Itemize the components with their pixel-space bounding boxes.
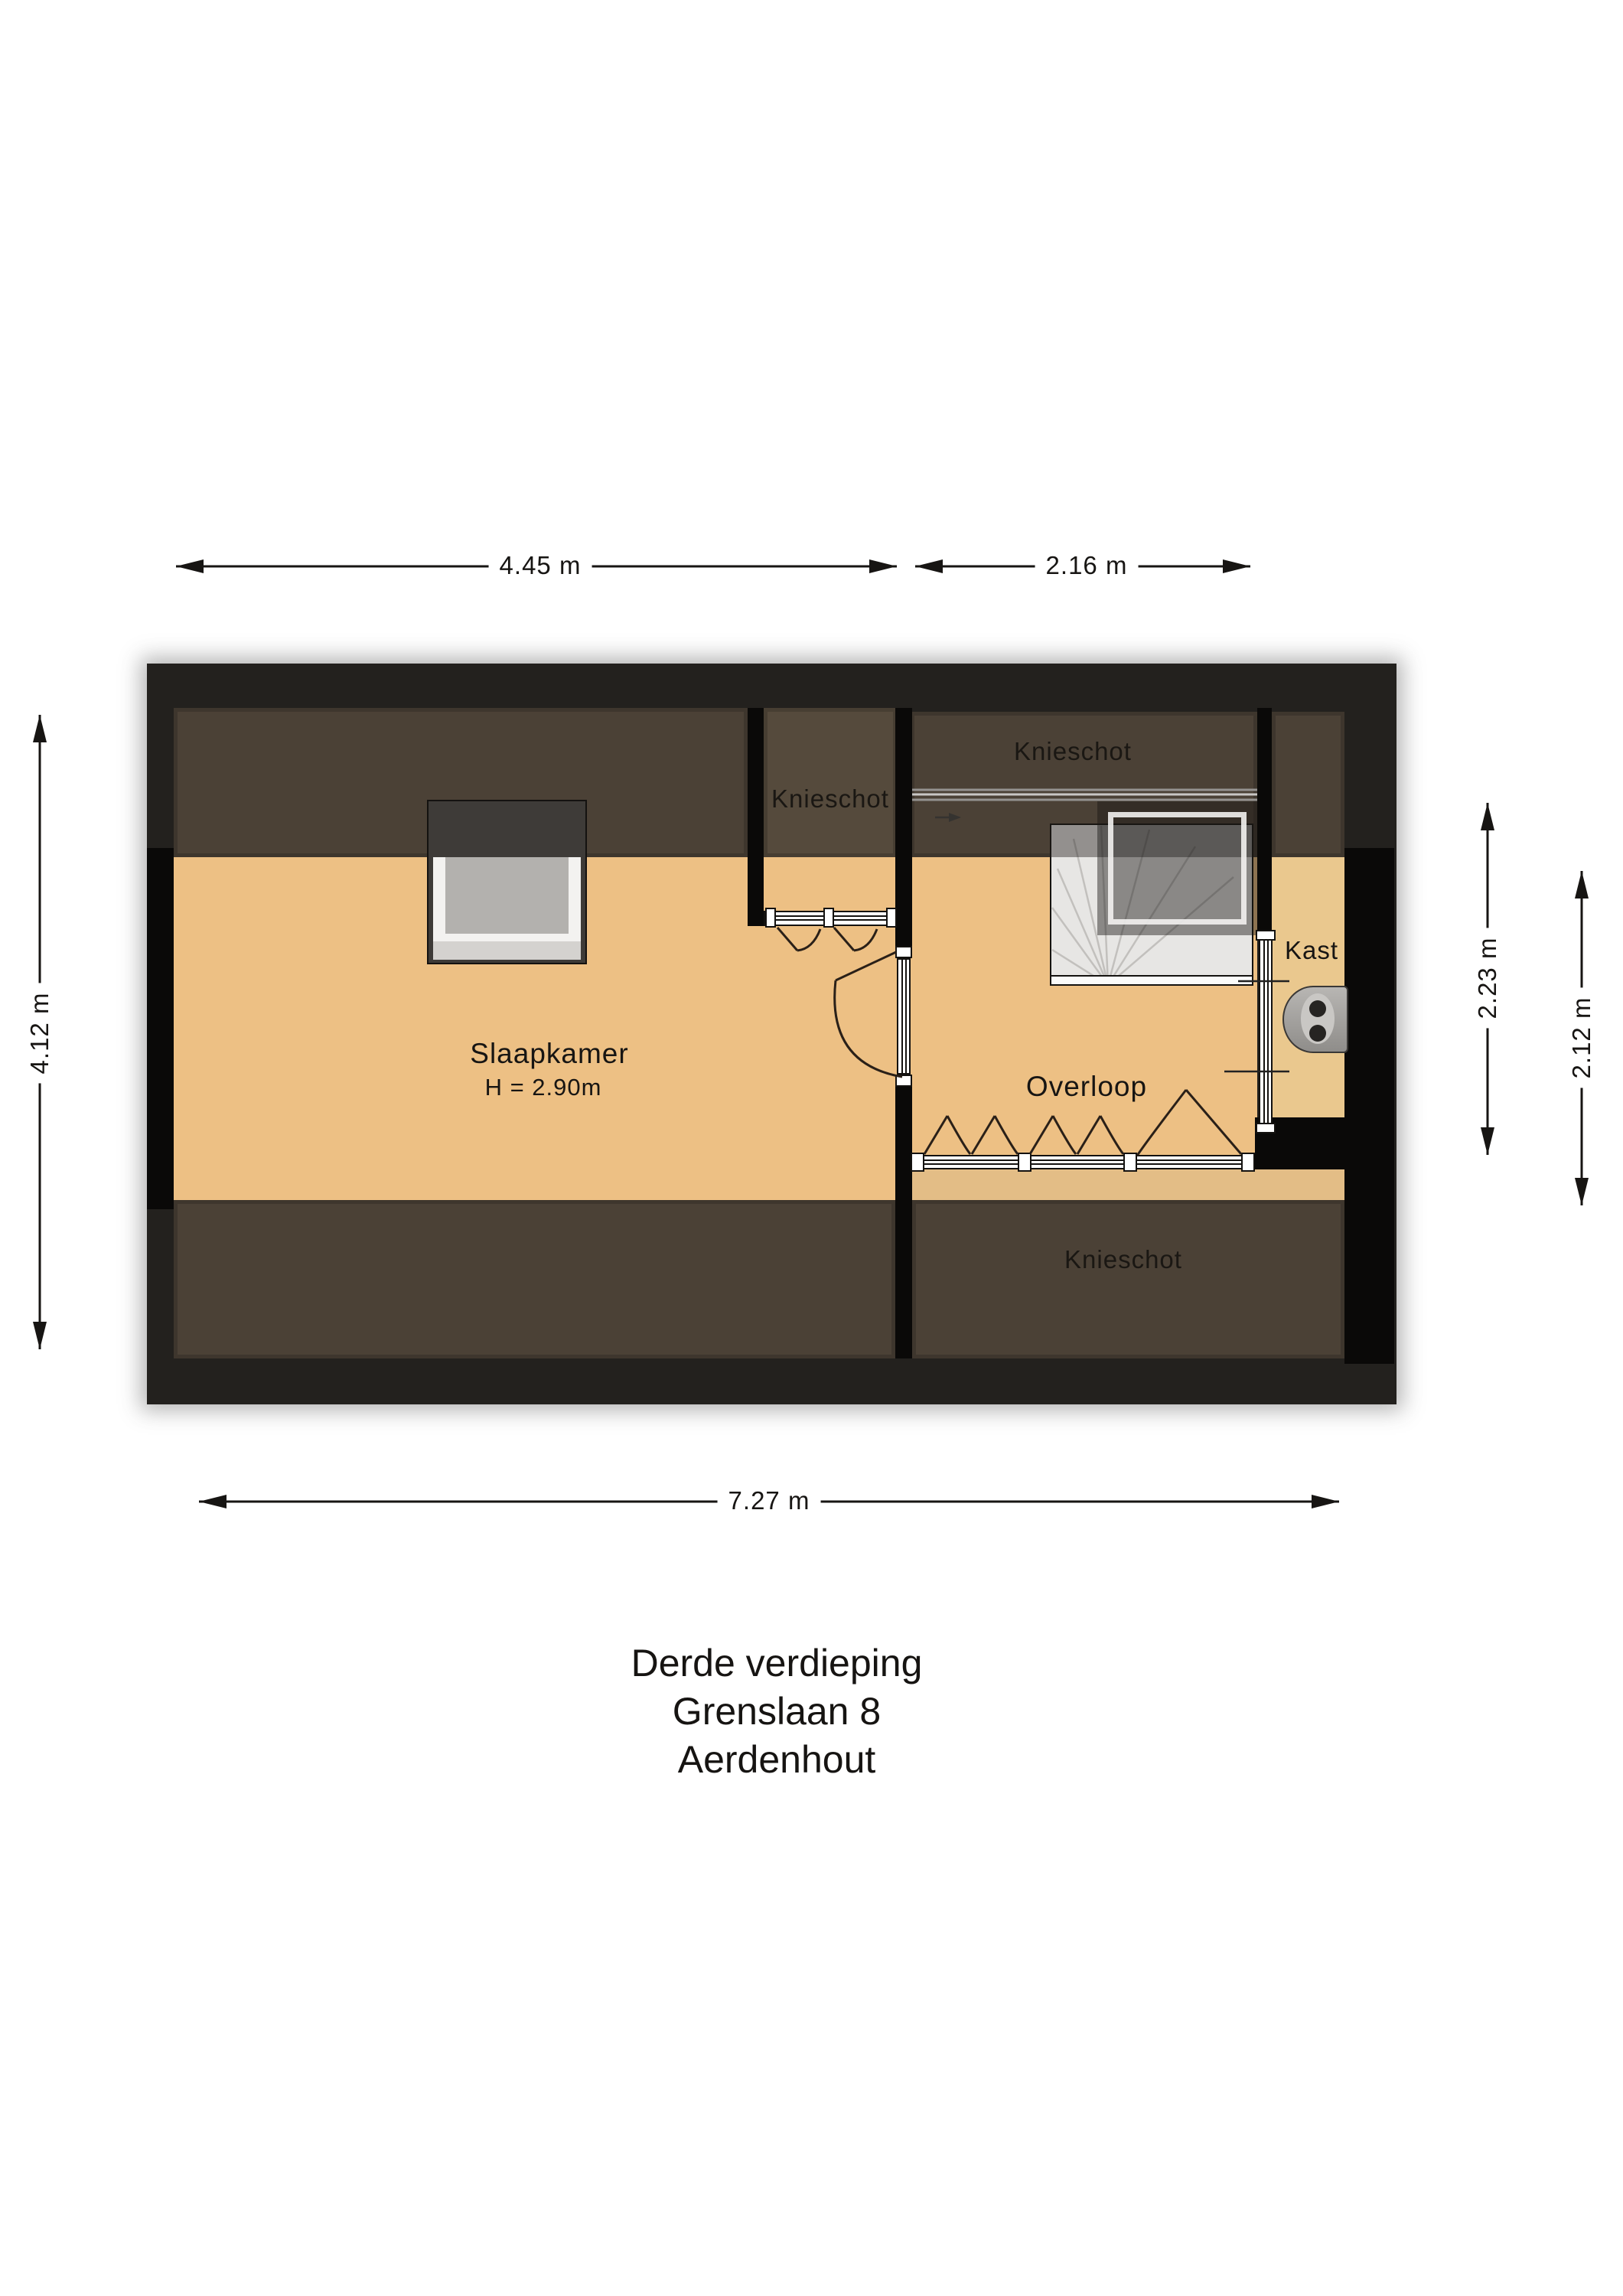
- door-jamb: [1018, 1153, 1031, 1172]
- plan-title-city: Aerdenhout: [631, 1736, 923, 1784]
- wall-right: [1344, 848, 1394, 1364]
- knee-wall-label-top-right: Knieschot: [1014, 737, 1132, 766]
- dimension-label-top-right: 2.16 m: [1035, 551, 1139, 580]
- dimension-label-bottom: 7.27 m: [718, 1486, 821, 1515]
- kast-glazed-partition: [1259, 933, 1273, 1133]
- stair-upper-flight-outline: [1108, 812, 1247, 925]
- knee-wall-closet-middle: [764, 708, 897, 857]
- floor-plan: [147, 664, 1396, 1404]
- knee-wall-label-bottom-right: Knieschot: [1064, 1245, 1182, 1274]
- door-jamb: [895, 1075, 912, 1087]
- knee-wall-zone-bottom-left: [174, 1200, 895, 1358]
- knee-wall-label-middle: Knieschot: [771, 784, 889, 814]
- roof-window-pane: [445, 857, 569, 934]
- plan-title: Derde verdieping Grenslaan 8 Aerdenhout: [631, 1639, 923, 1784]
- room-label-slaapkamer-height: H = 2.90m: [485, 1074, 602, 1101]
- room-label-slaapkamer: Slaapkamer: [470, 1038, 628, 1070]
- wall-left: [147, 848, 174, 1209]
- knee-wall-zone-above-kast: [1272, 712, 1344, 857]
- door-jamb: [911, 1153, 924, 1172]
- dimension-label-left: 4.12 m: [25, 983, 54, 1084]
- ventilation-unit-knob-bottom: [1309, 1025, 1326, 1042]
- door-jamb: [1256, 930, 1276, 941]
- wall-middle-lower: [895, 1087, 912, 1358]
- plan-title-floor: Derde verdieping: [631, 1639, 923, 1688]
- knee-wall-zone-bottom-right: [912, 1200, 1344, 1358]
- overloop-closet-doors: [911, 1155, 1255, 1169]
- door-jamb: [765, 908, 776, 928]
- ventilation-unit-knob-top: [1309, 1000, 1326, 1017]
- roof-window-sill: [433, 941, 581, 960]
- dimension-label-top-left: 4.45 m: [489, 551, 592, 580]
- plan-title-address: Grenslaan 8: [631, 1688, 923, 1736]
- floor-plan-page: 4.45 m 2.16 m 7.27 m 4.12 m 2.23 m 2.12 …: [0, 0, 1623, 2296]
- door-jamb: [823, 908, 834, 928]
- wall-stairwell-right: [1257, 708, 1272, 933]
- closet-walk-strip: [912, 1169, 1344, 1200]
- door-jamb: [1256, 1123, 1276, 1133]
- stairwell-lip: [1050, 975, 1253, 986]
- room-label-overloop: Overloop: [1026, 1071, 1147, 1103]
- wall-middle-upper: [895, 708, 912, 949]
- door-jamb: [1123, 1153, 1137, 1172]
- door-jamb: [1241, 1153, 1255, 1172]
- room-label-kast: Kast: [1285, 936, 1338, 965]
- door-jamb: [886, 908, 897, 928]
- slaapkamer-door-leaf: [897, 958, 911, 1075]
- dimension-label-right-outer: 2.12 m: [1567, 988, 1596, 1088]
- wall-closet-left: [748, 708, 764, 926]
- dimension-label-right-inner: 2.23 m: [1473, 928, 1502, 1029]
- door-jamb: [895, 946, 912, 958]
- ventilation-unit: [1282, 986, 1348, 1053]
